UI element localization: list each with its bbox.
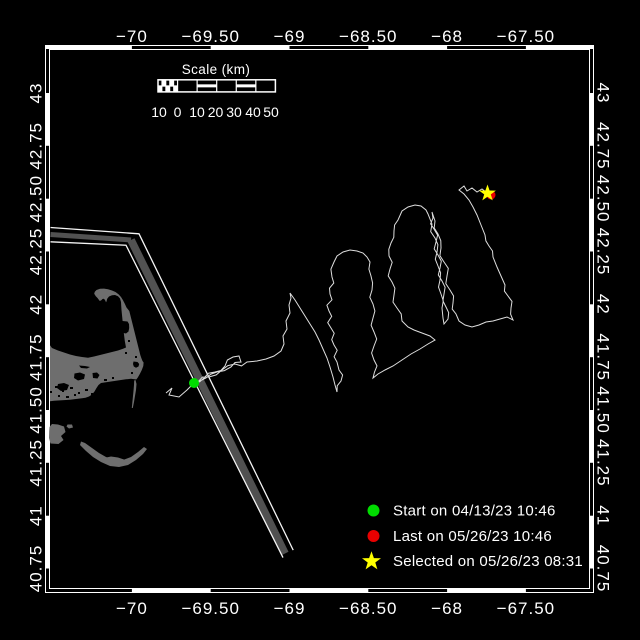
svg-text:42: 42 <box>27 294 46 315</box>
svg-text:41.75: 41.75 <box>594 333 613 381</box>
svg-text:−67.50: −67.50 <box>497 599 555 618</box>
svg-text:40: 40 <box>245 104 261 120</box>
svg-text:20: 20 <box>208 104 224 120</box>
svg-text:42.75: 42.75 <box>27 122 46 170</box>
svg-text:Scale (km): Scale (km) <box>182 62 251 77</box>
svg-text:−70: −70 <box>116 27 148 46</box>
svg-text:Selected on 05/26/23 08:31: Selected on 05/26/23 08:31 <box>393 553 583 570</box>
svg-text:−69.50: −69.50 <box>181 27 239 46</box>
svg-text:42: 42 <box>594 294 613 315</box>
svg-text:42.25: 42.25 <box>594 228 613 276</box>
svg-text:10: 10 <box>189 104 205 120</box>
svg-text:41.25: 41.25 <box>27 439 46 487</box>
svg-text:40.75: 40.75 <box>27 545 46 593</box>
svg-text:−69.50: −69.50 <box>181 599 239 618</box>
svg-text:30: 30 <box>226 104 242 120</box>
svg-text:42.50: 42.50 <box>594 175 613 223</box>
svg-text:41.25: 41.25 <box>594 439 613 487</box>
svg-text:41: 41 <box>594 505 613 526</box>
svg-text:50: 50 <box>263 104 279 120</box>
svg-text:43: 43 <box>27 83 46 104</box>
svg-text:41.75: 41.75 <box>27 333 46 381</box>
svg-text:−68: −68 <box>431 599 463 618</box>
svg-text:10: 10 <box>151 104 167 120</box>
svg-text:−68.50: −68.50 <box>339 599 397 618</box>
svg-text:−69: −69 <box>274 27 306 46</box>
svg-text:41.50: 41.50 <box>27 386 46 434</box>
svg-text:42.50: 42.50 <box>27 175 46 223</box>
svg-text:42.75: 42.75 <box>594 122 613 170</box>
svg-text:0: 0 <box>174 104 182 120</box>
svg-text:−68.50: −68.50 <box>339 27 397 46</box>
svg-text:42.25: 42.25 <box>27 228 46 276</box>
svg-text:−70: −70 <box>116 599 148 618</box>
svg-text:43: 43 <box>594 83 613 104</box>
svg-text:Start on 04/13/23 10:46: Start on 04/13/23 10:46 <box>393 503 556 520</box>
svg-text:−69: −69 <box>274 599 306 618</box>
svg-text:−67.50: −67.50 <box>497 27 555 46</box>
svg-text:Last on 05/26/23 10:46: Last on 05/26/23 10:46 <box>393 528 552 545</box>
svg-text:40.75: 40.75 <box>594 545 613 593</box>
svg-text:41.50: 41.50 <box>594 386 613 434</box>
svg-text:−68: −68 <box>431 27 463 46</box>
svg-text:41: 41 <box>27 505 46 526</box>
